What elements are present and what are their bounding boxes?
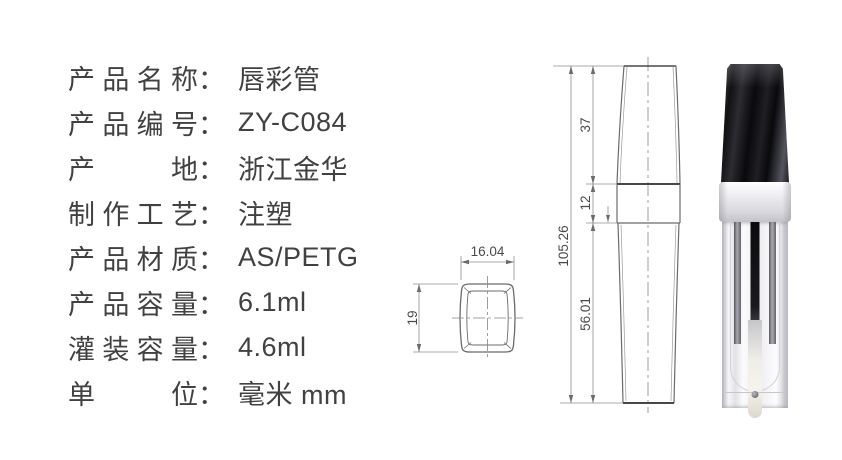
tube-body-outline bbox=[618, 223, 679, 403]
arrowhead bbox=[569, 395, 573, 403]
spec-colon: ： bbox=[198, 148, 225, 187]
tube-side-view-drawing: 105.26 37 12 56.01 bbox=[540, 40, 710, 430]
spec-colon: ： bbox=[198, 283, 225, 322]
spec-label: 产地 bbox=[68, 148, 198, 187]
spec-label: 产品容量 bbox=[68, 283, 198, 322]
total-height-dim-label: 105.26 bbox=[556, 225, 571, 266]
arrowhead bbox=[417, 344, 421, 352]
arrowhead bbox=[591, 395, 595, 403]
spec-colon: ： bbox=[198, 193, 225, 232]
photo-applicator-tip bbox=[748, 320, 762, 418]
spec-row-unit: 单位：毫米 mm bbox=[68, 370, 398, 415]
spec-row-origin: 产地：浙江金华 bbox=[68, 145, 398, 190]
spec-value: 浙江金华 bbox=[238, 148, 348, 187]
arrowhead bbox=[591, 176, 595, 184]
arrowhead bbox=[506, 260, 514, 264]
spec-label: 产品名称 bbox=[68, 58, 198, 97]
spec-colon: ： bbox=[198, 328, 225, 367]
spec-value: AS/PETG bbox=[238, 242, 359, 273]
cap-centerlines bbox=[452, 276, 523, 360]
cap-top-view-drawing: 16.04 19 bbox=[400, 233, 550, 383]
arrowhead bbox=[606, 215, 610, 222]
spec-row-product-name: 产品名称：唇彩管 bbox=[68, 55, 398, 100]
tube-collar-outline bbox=[617, 184, 680, 223]
photo-base-dot bbox=[752, 391, 759, 398]
spec-label: 灌装容量 bbox=[68, 328, 198, 367]
spec-label: 制作工艺 bbox=[68, 193, 198, 232]
cap-height-dim-label: 19 bbox=[405, 310, 420, 325]
arrowhead bbox=[417, 284, 421, 292]
arrowhead bbox=[591, 66, 595, 74]
photo-silver-collar bbox=[719, 182, 791, 222]
photo-reflection-left bbox=[734, 222, 741, 344]
spec-value: 4.6ml bbox=[238, 332, 307, 363]
spec-label: 单位 bbox=[68, 373, 198, 412]
arrowhead bbox=[591, 184, 595, 192]
spec-row-product-code: 产品编号：ZY-C084 bbox=[68, 100, 398, 145]
arrowhead bbox=[569, 66, 573, 74]
spec-row-capacity: 产品容量：6.1ml bbox=[68, 280, 398, 325]
spec-value: 注塑 bbox=[238, 193, 293, 232]
spec-value: 毫米 mm bbox=[238, 373, 347, 412]
tube-cap-outline bbox=[617, 66, 680, 184]
arrowhead bbox=[591, 223, 595, 231]
spec-row-material: 产品材质：AS/PETG bbox=[68, 235, 398, 280]
spec-table: 产品名称：唇彩管 产品编号：ZY-C084 产地：浙江金华 制作工艺：注塑 产品… bbox=[68, 55, 398, 415]
spec-value: ZY-C084 bbox=[238, 107, 347, 138]
spec-row-fill-capacity: 灌装容量：4.6ml bbox=[68, 325, 398, 370]
spec-value: 6.1ml bbox=[238, 287, 307, 318]
cap-width-dim-label: 16.04 bbox=[471, 244, 505, 259]
arrowhead bbox=[591, 215, 595, 223]
spec-label: 产品编号 bbox=[68, 103, 198, 142]
collar-height-dim-label: 12 bbox=[578, 195, 593, 210]
spec-row-process: 制作工艺：注塑 bbox=[68, 190, 398, 235]
arrowhead bbox=[461, 260, 469, 264]
product-spec-sheet: 产品名称：唇彩管 产品编号：ZY-C084 产地：浙江金华 制作工艺：注塑 产品… bbox=[0, 0, 842, 460]
spec-colon: ： bbox=[198, 58, 225, 97]
cap-height-dim-label: 37 bbox=[578, 117, 593, 132]
spec-value: 唇彩管 bbox=[238, 58, 321, 97]
spec-colon: ： bbox=[198, 373, 225, 412]
product-photo bbox=[716, 62, 794, 409]
spec-colon: ： bbox=[198, 103, 225, 142]
photo-clear-bottle bbox=[722, 222, 788, 408]
spec-colon: ： bbox=[198, 238, 225, 277]
spec-label: 产品材质 bbox=[68, 238, 198, 277]
body-height-dim-label: 56.01 bbox=[578, 297, 593, 331]
photo-black-cap bbox=[721, 64, 789, 183]
photo-reflection-right bbox=[769, 222, 776, 344]
